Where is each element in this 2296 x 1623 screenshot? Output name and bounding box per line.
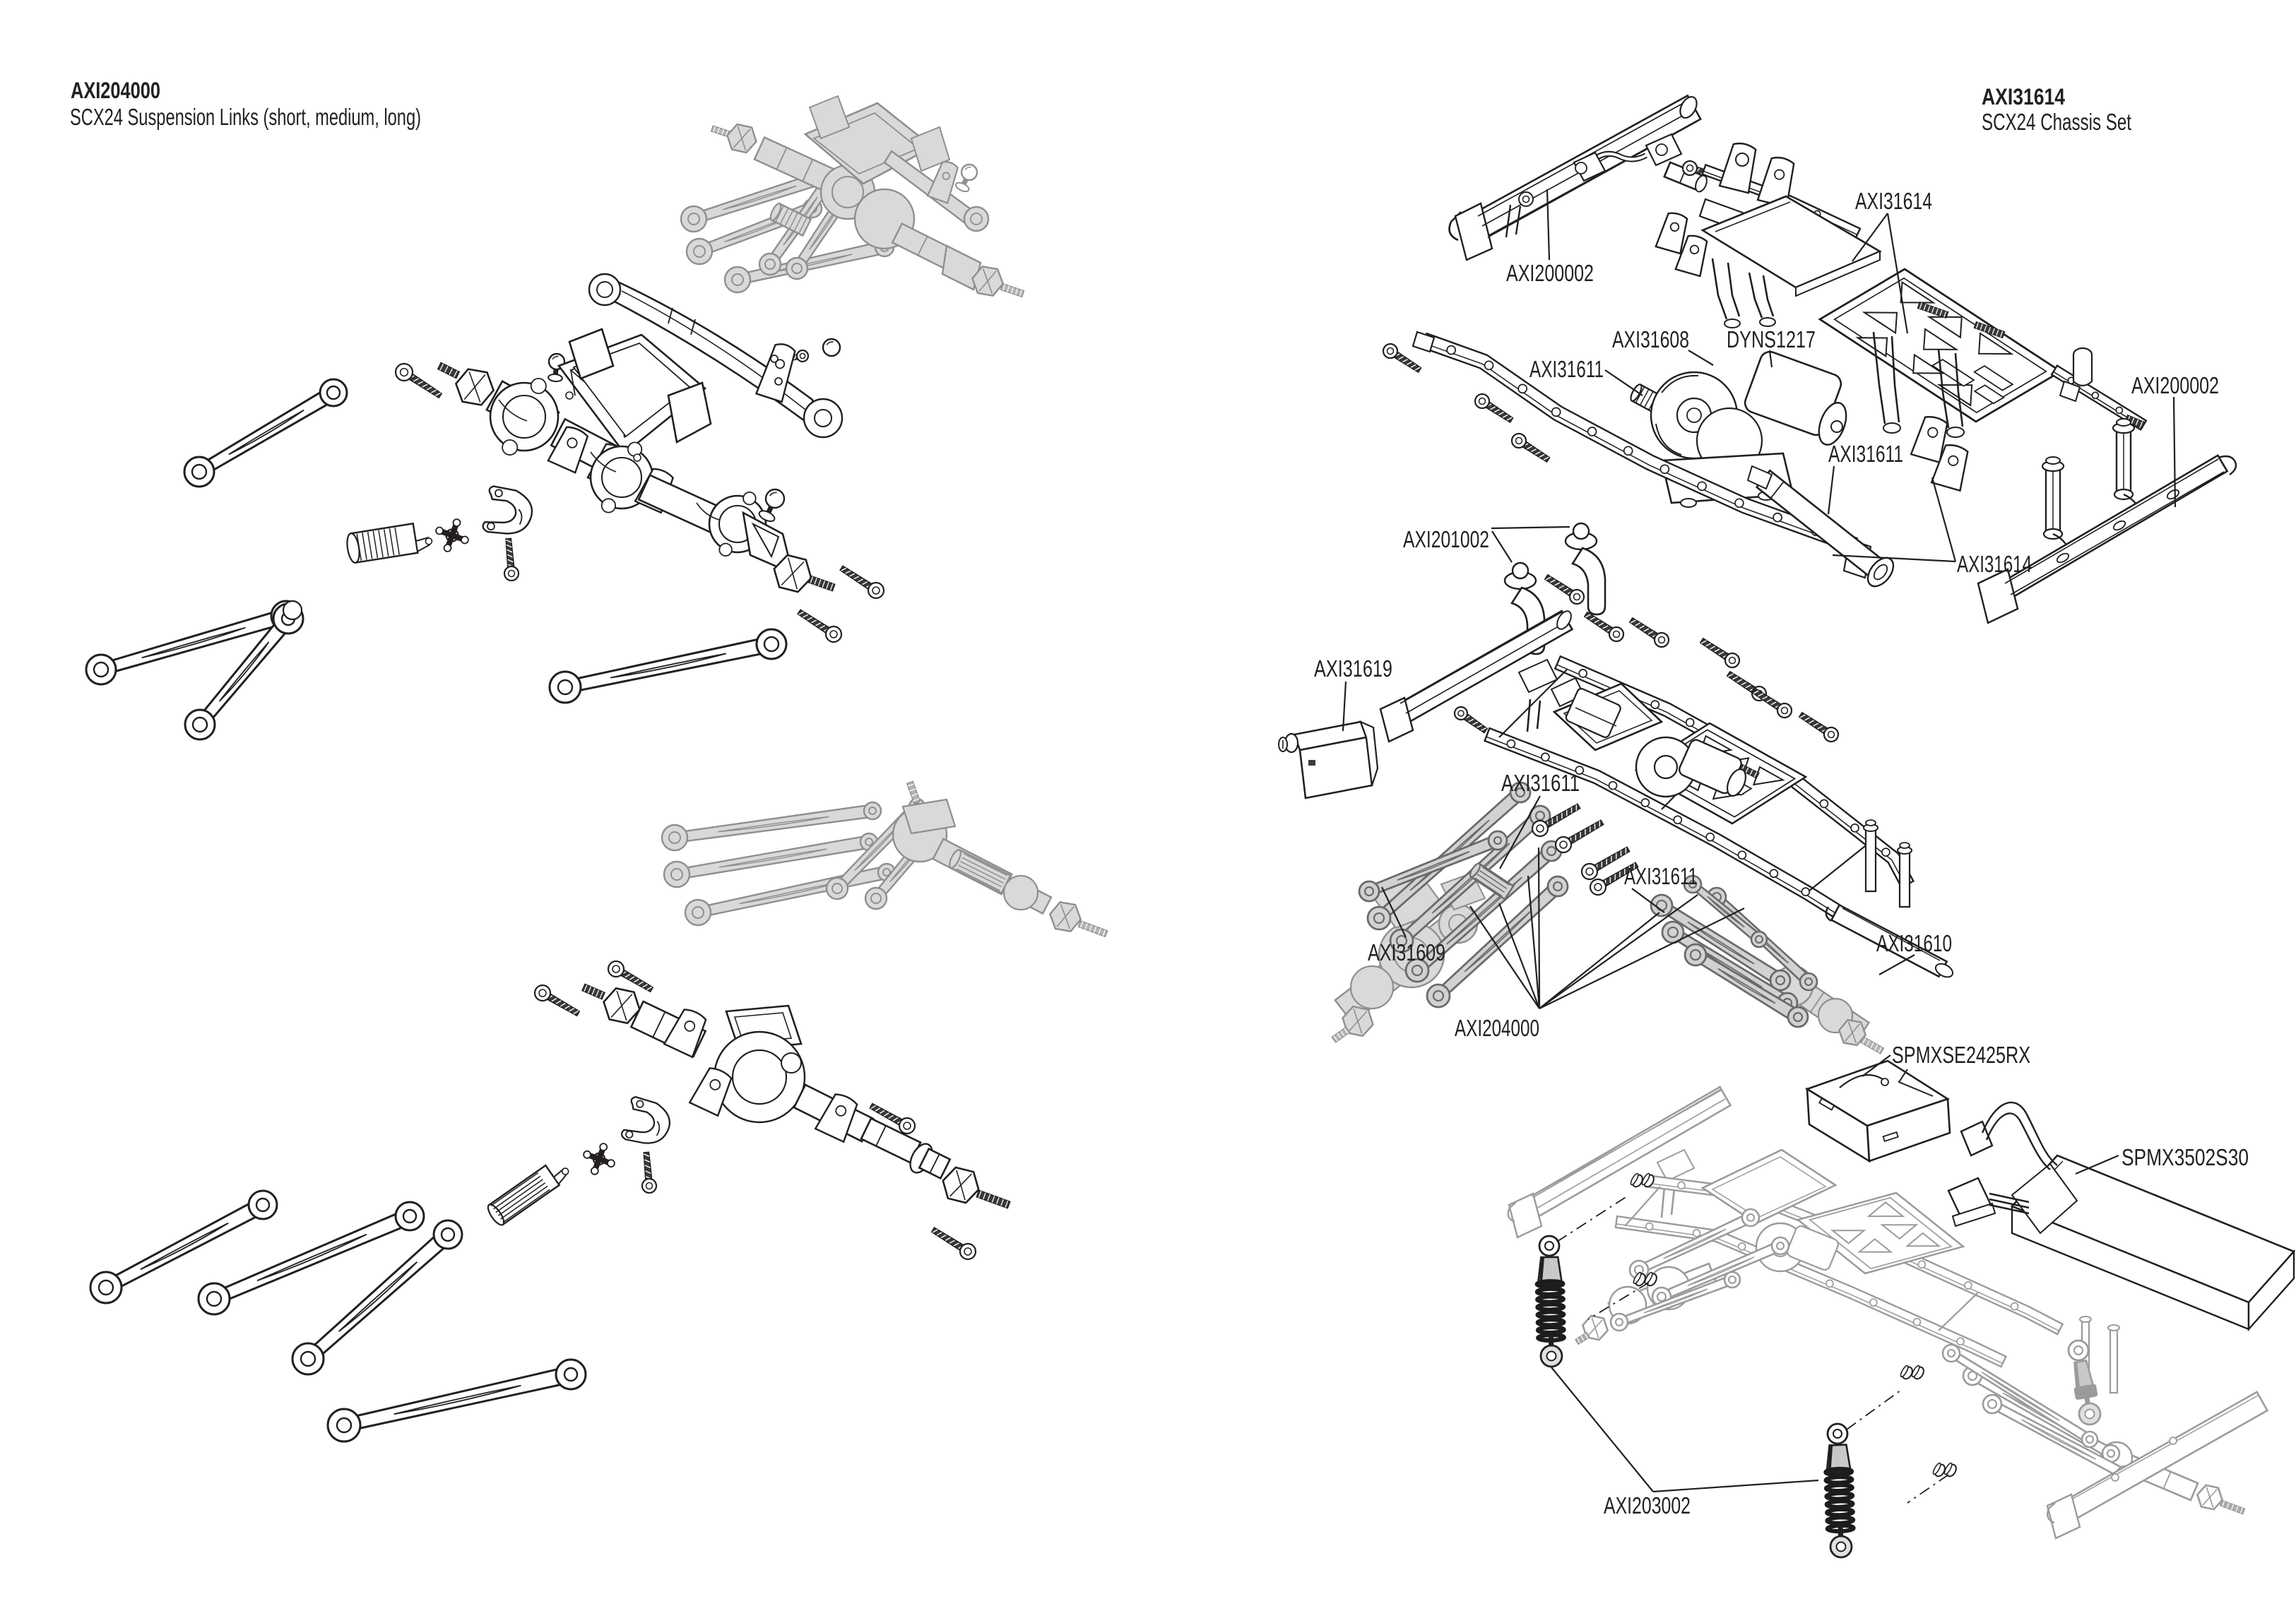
svg-text:AXI31614: AXI31614 xyxy=(1855,188,1932,214)
svg-text:AXI31611: AXI31611 xyxy=(1624,863,1698,889)
svg-text:AXI31614: AXI31614 xyxy=(1982,84,2065,109)
svg-text:AXI200002: AXI200002 xyxy=(2131,372,2219,398)
svg-text:AXI203002: AXI203002 xyxy=(1604,1492,1691,1518)
svg-text:AXI204000: AXI204000 xyxy=(71,78,160,103)
svg-text:AXI31610: AXI31610 xyxy=(1876,930,1952,956)
svg-text:AXI31614: AXI31614 xyxy=(1957,551,2032,577)
svg-text:SCX24 Suspension Links (short,: SCX24 Suspension Links (short, medium, l… xyxy=(70,104,421,130)
svg-text:AXI31609: AXI31609 xyxy=(1368,939,1445,965)
svg-text:AXI31611: AXI31611 xyxy=(1501,770,1580,796)
svg-text:SCX24 Chassis Set: SCX24 Chassis Set xyxy=(1982,109,2131,135)
svg-text:SPMX3502S30: SPMX3502S30 xyxy=(2122,1144,2249,1170)
svg-text:AXI31611: AXI31611 xyxy=(1828,441,1903,467)
svg-text:SPMXSE2425RX: SPMXSE2425RX xyxy=(1892,1042,2030,1068)
svg-text:AXI31608: AXI31608 xyxy=(1612,326,1689,352)
svg-text:AXI201002: AXI201002 xyxy=(1403,526,1489,552)
svg-text:AXI204000: AXI204000 xyxy=(1455,1015,1539,1041)
svg-text:DYNS1217: DYNS1217 xyxy=(1727,326,1816,352)
svg-text:AXI31611: AXI31611 xyxy=(1529,356,1604,382)
svg-text:AXI200002: AXI200002 xyxy=(1506,260,1594,286)
svg-text:AXI31619: AXI31619 xyxy=(1314,655,1392,682)
